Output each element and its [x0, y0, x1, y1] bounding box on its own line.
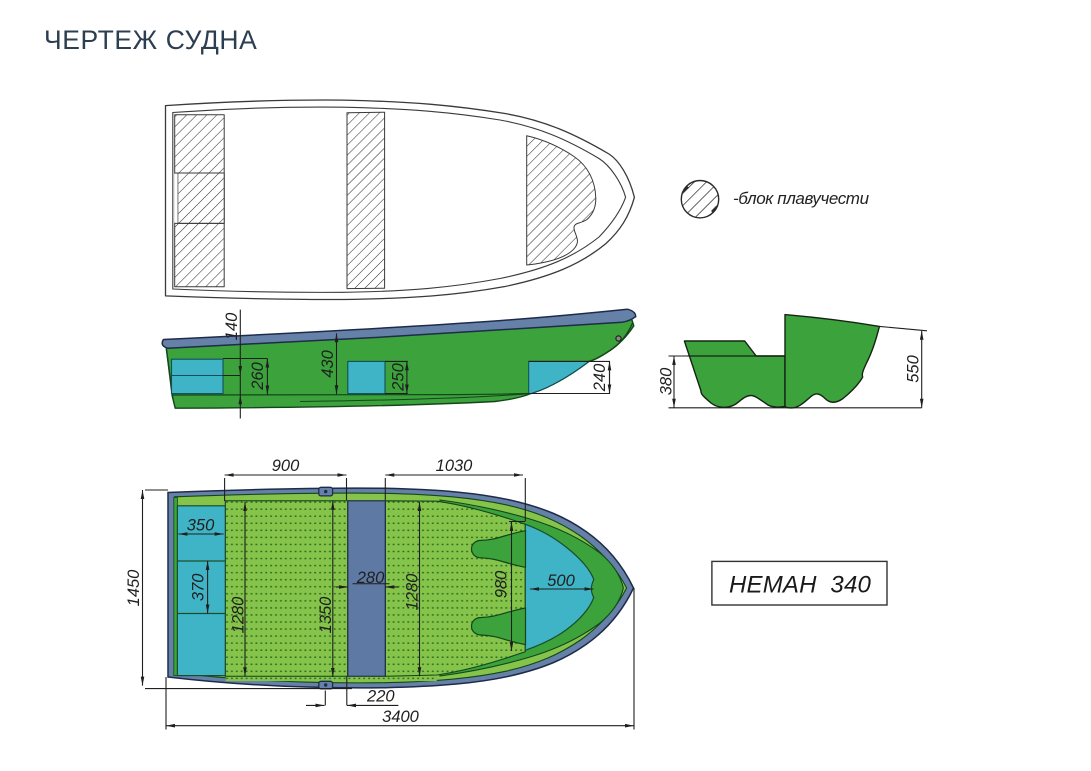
- svg-text:430: 430: [319, 349, 337, 377]
- svg-text:260: 260: [249, 361, 267, 390]
- svg-text:380: 380: [657, 367, 675, 395]
- svg-text:1030: 1030: [436, 457, 474, 475]
- svg-text:220: 220: [366, 687, 395, 705]
- svg-text:ЧЕРТЕЖ СУДНА: ЧЕРТЕЖ СУДНА: [44, 25, 257, 55]
- svg-text:240: 240: [591, 363, 609, 392]
- svg-text:250: 250: [389, 362, 407, 391]
- svg-text:1280: 1280: [403, 573, 421, 611]
- svg-text:980: 980: [492, 570, 510, 598]
- svg-text:НЕМАН 340: НЕМАН 340: [729, 572, 872, 599]
- svg-text:1450: 1450: [125, 569, 143, 607]
- svg-text:3400: 3400: [382, 708, 420, 726]
- svg-text:140: 140: [223, 312, 241, 340]
- svg-text:370: 370: [189, 573, 207, 601]
- svg-text:550: 550: [904, 354, 922, 382]
- svg-text:900: 900: [272, 457, 300, 475]
- svg-text:350: 350: [187, 516, 215, 534]
- svg-text:1280: 1280: [229, 596, 247, 634]
- svg-text:-блок плавучести: -блок плавучести: [733, 189, 870, 208]
- svg-text:500: 500: [547, 572, 575, 590]
- svg-text:1350: 1350: [317, 596, 335, 634]
